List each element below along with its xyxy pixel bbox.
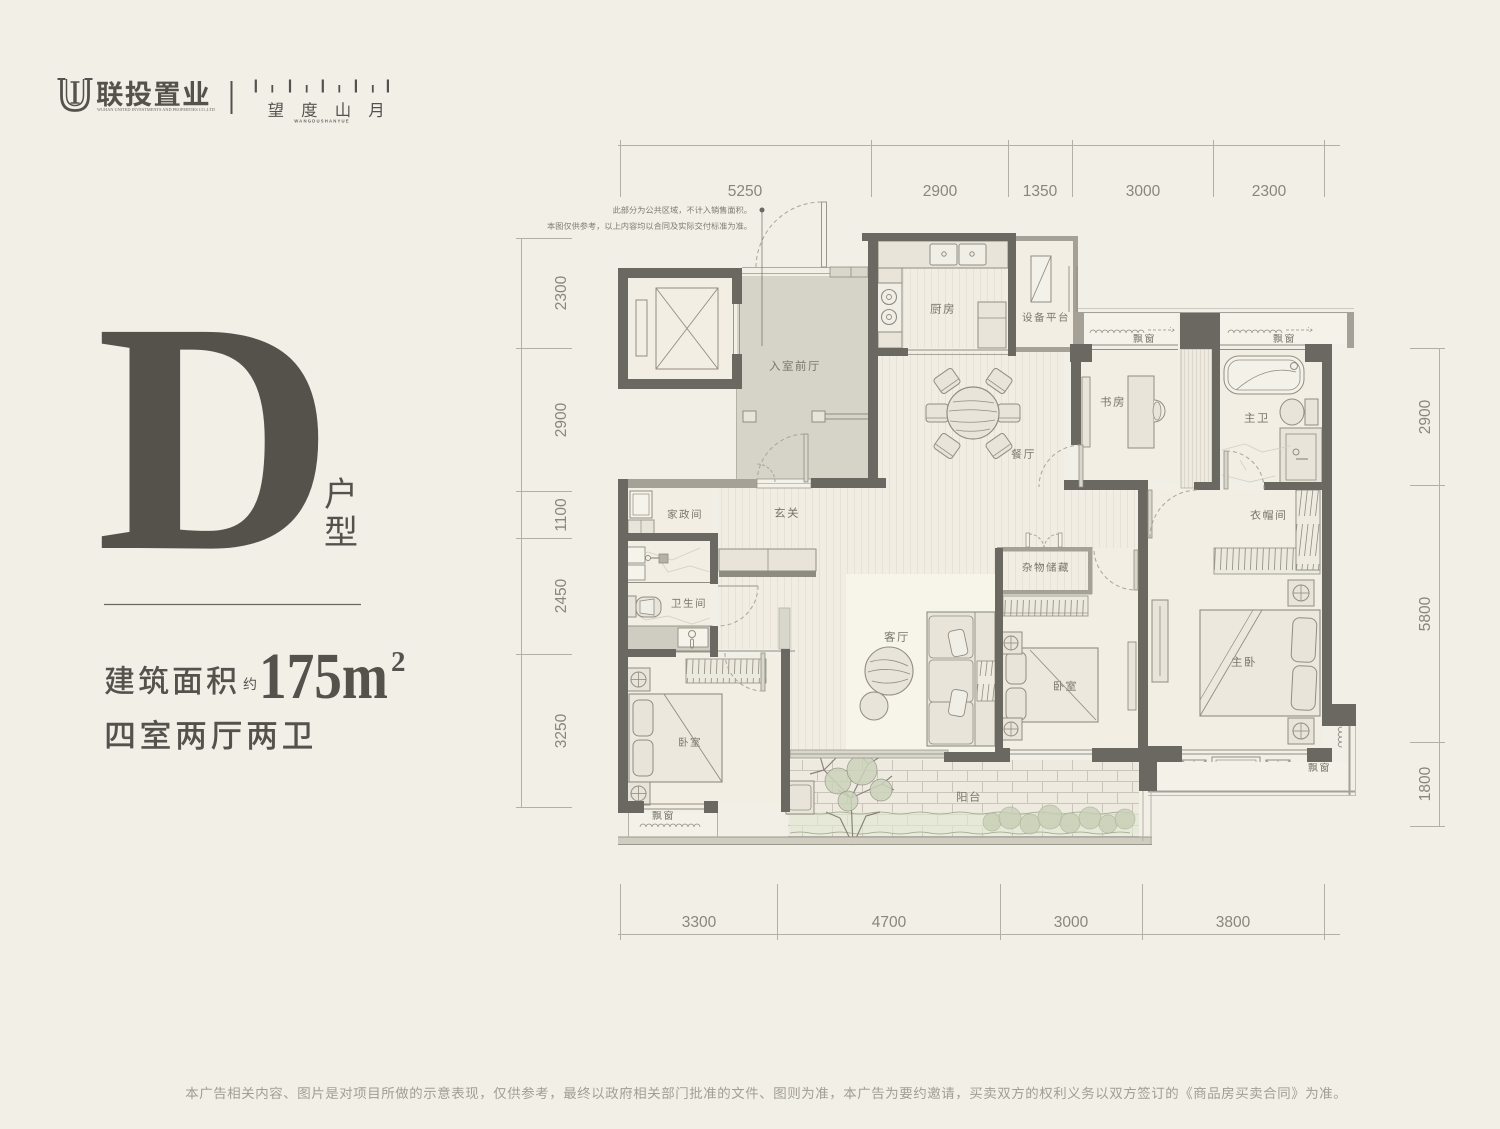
svg-text:3000: 3000 bbox=[1126, 183, 1161, 200]
svg-text:WANGDUSHANYUE: WANGDUSHANYUE bbox=[294, 119, 350, 124]
svg-text:4700: 4700 bbox=[872, 914, 907, 931]
svg-text:2300: 2300 bbox=[1252, 183, 1287, 200]
svg-text:3250: 3250 bbox=[553, 713, 570, 748]
svg-text:1350: 1350 bbox=[1023, 183, 1058, 200]
svg-text:5800: 5800 bbox=[1417, 596, 1434, 631]
svg-text:3300: 3300 bbox=[682, 914, 717, 931]
svg-text:D: D bbox=[96, 255, 334, 620]
svg-text:1800: 1800 bbox=[1417, 766, 1434, 801]
svg-text:2900: 2900 bbox=[923, 183, 958, 200]
svg-text:2900: 2900 bbox=[1417, 399, 1434, 434]
svg-text:2450: 2450 bbox=[553, 578, 570, 613]
svg-text:2300: 2300 bbox=[553, 275, 570, 310]
svg-text:3000: 3000 bbox=[1054, 914, 1089, 931]
svg-text:3800: 3800 bbox=[1216, 914, 1251, 931]
svg-text:2: 2 bbox=[391, 646, 406, 678]
svg-text:5250: 5250 bbox=[728, 183, 763, 200]
svg-text:1100: 1100 bbox=[553, 498, 570, 532]
svg-text:2900: 2900 bbox=[553, 402, 570, 437]
svg-text:175m: 175m bbox=[259, 640, 388, 713]
